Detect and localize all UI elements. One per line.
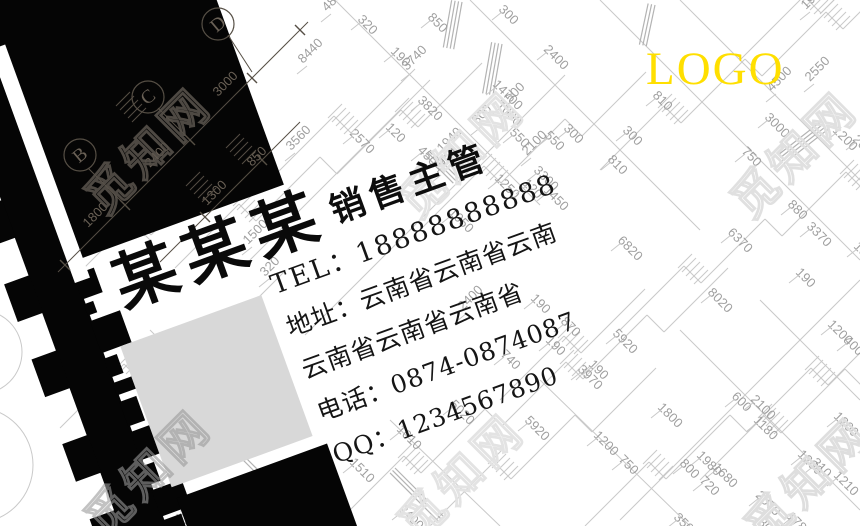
hatch-mark [655, 462, 669, 476]
dimension-label: 850 [425, 10, 451, 36]
business-card-mockup: 4800320850300240084401903740382014700100… [0, 0, 860, 526]
logo-text: LOGO [646, 42, 846, 96]
hatch-mark [395, 98, 409, 112]
cad-line [826, 12, 843, 29]
dimension-tick [321, 14, 331, 22]
dimension-label: 3370 [804, 219, 835, 250]
hatch-mark [674, 110, 688, 124]
dimension-label: 4800 [319, 0, 350, 14]
hatch-mark [414, 460, 428, 474]
hatch-mark [340, 116, 354, 130]
hatch-mark [836, 16, 850, 30]
dimension-label: 2570 [347, 126, 378, 157]
cad-circle [0, 407, 33, 523]
hatch-mark [809, 360, 823, 374]
cad-line [575, 415, 592, 432]
hatch-mark [328, 104, 342, 118]
dimension-label: 300 [496, 2, 522, 28]
hatch-mark [813, 364, 827, 378]
dimension-tick [800, 12, 810, 20]
hatch-mark [336, 112, 350, 126]
cad-line [760, 300, 860, 400]
hatch-mark [410, 456, 424, 470]
dimension-label: 190 [851, 239, 860, 265]
hatch-mark [407, 110, 421, 124]
hatch-mark [643, 450, 657, 464]
cad-line [320, 157, 337, 174]
hatch-mark [670, 106, 684, 120]
dimension-label: 190 [793, 265, 819, 291]
dimension-tick [297, 66, 307, 74]
wall-lines [450, 1, 458, 48]
hatch-mark [828, 8, 842, 22]
dimension-label: 1180 [751, 413, 781, 443]
cad-line [765, 219, 782, 236]
cad-line [821, 0, 860, 13]
cad-line [585, 462, 649, 526]
dimension-tick [401, 73, 411, 81]
dimension-label: 350 [671, 510, 697, 526]
dimension-label: 190 [798, 0, 824, 12]
cad-line [843, 0, 860, 29]
dimension-label: 320 [355, 12, 381, 38]
dimension-label: 1200 [591, 428, 622, 459]
hatch-mark [832, 12, 846, 26]
cad-line [730, 415, 747, 432]
dimension-label: 2400 [541, 42, 572, 73]
cad-line [582, 72, 646, 136]
hatch-mark [817, 368, 831, 382]
hatch-mark [659, 466, 673, 480]
cad-line [811, 368, 828, 385]
hatch-mark [647, 454, 661, 468]
dimension-label: 8440 [295, 35, 326, 66]
hatch-mark [821, 372, 835, 386]
cad-line [404, 456, 421, 473]
cad-line [401, 110, 418, 127]
hatch-mark [651, 458, 665, 472]
hatch-mark [406, 452, 420, 466]
hatch-mark [411, 114, 425, 128]
cad-line [845, 369, 860, 386]
dimension-label: 6370 [725, 225, 756, 256]
dimension-label: 3560 [283, 122, 314, 153]
hatch-mark [824, 4, 838, 18]
hatch-mark [805, 356, 819, 370]
dimension-tick [259, 279, 269, 287]
dimension-label: 1800 [655, 400, 686, 431]
hatch-mark [332, 108, 346, 122]
wall-lines [454, 2, 462, 49]
cad-circle [0, 310, 22, 394]
dimension-label: 3740 [399, 42, 430, 73]
cad-line [334, 116, 351, 133]
dimension-label: 880 [785, 197, 811, 223]
